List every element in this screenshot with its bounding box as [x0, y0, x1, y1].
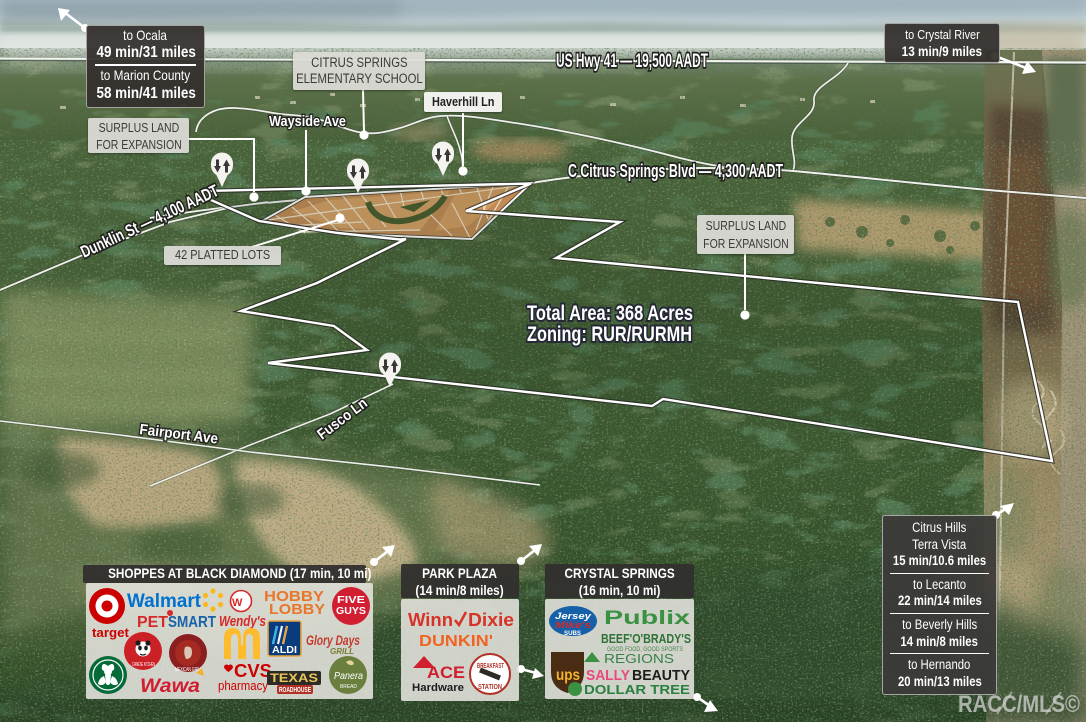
svg-text:RACC/MLS©: RACC/MLS© [958, 691, 1080, 718]
svg-text:Wayside Ave: Wayside Ave [269, 113, 346, 130]
svg-text:US Hwy 41 — 19,500 AADT: US Hwy 41 — 19,500 AADT [556, 51, 708, 72]
svg-text:Total Area: 368 Acres: Total Area: 368 Acres [527, 302, 693, 325]
svg-text:C Citrus Springs Blvd — 4,300: C Citrus Springs Blvd — 4,300 AADT [568, 161, 783, 181]
svg-text:Zoning: RUR/RURMH: Zoning: RUR/RURMH [527, 323, 692, 346]
